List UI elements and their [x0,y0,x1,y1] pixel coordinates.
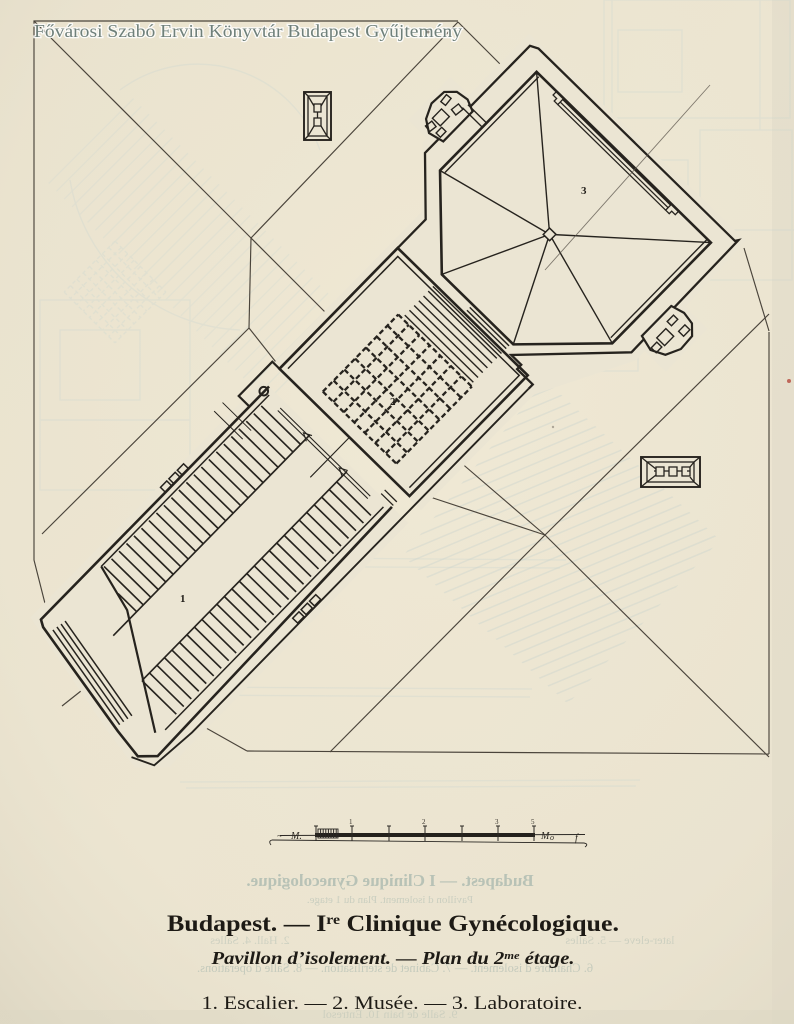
svg-text:M: M [540,831,550,842]
svg-text:~: ~ [277,831,282,841]
svg-text:3: 3 [495,818,499,826]
svg-text:Fővárosi Szabó Ervin Könyvtár: Fővárosi Szabó Ervin Könyvtár Budapest G… [34,21,462,41]
svg-text:1. Escalier. — 2. Musée. — 3.: 1. Escalier. — 2. Musée. — 3. Laboratoir… [202,994,583,1014]
svg-text:2: 2 [390,396,396,408]
svg-text:Pavillon d’isolement. — Plan d: Pavillon d’isolement. — Plan du 2me étag… [210,948,574,968]
svg-text:Pavillon d isolement. Plan du: Pavillon d isolement. Plan du 1 etage. [307,894,473,906]
svg-text:M.: M. [290,831,302,842]
svg-text:2: 2 [422,818,426,826]
svg-text:1: 1 [349,818,353,826]
svg-text:o: o [550,833,554,842]
svg-text:1: 1 [180,593,186,605]
svg-text:Budapest. — I Clinique Gynecol: Budapest. — I Clinique Gynecologique. [246,871,533,890]
svg-text:3: 3 [581,185,587,197]
svg-text:Budapest. — Ire Clinique Gynéc: Budapest. — Ire Clinique Gynécologique. [167,911,619,936]
svg-text:5: 5 [531,818,535,826]
